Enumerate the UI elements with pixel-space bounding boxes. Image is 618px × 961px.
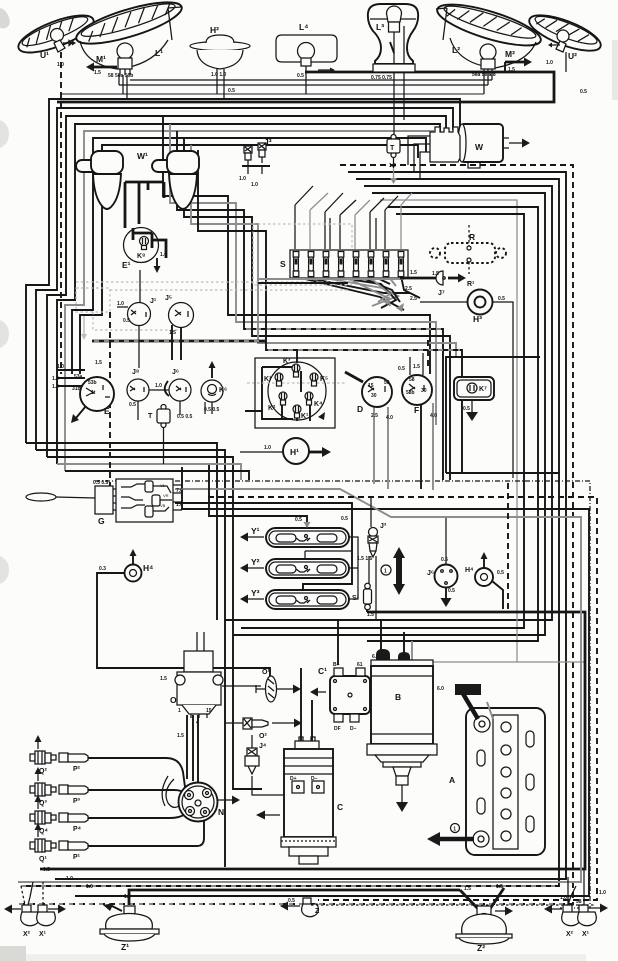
svg-text:50: 50 [384, 380, 390, 386]
svg-text:1.0 1.0: 1.0 1.0 [211, 72, 227, 78]
svg-text:T: T [390, 145, 395, 152]
svg-text:1.0: 1.0 [599, 890, 606, 896]
svg-text:D: D [357, 404, 363, 414]
svg-text:4.0: 4.0 [430, 413, 437, 419]
svg-text:56a 56 a 8: 56a 56 a 8 [472, 72, 496, 78]
svg-text:K⁵: K⁵ [320, 376, 328, 383]
svg-text:1.0: 1.0 [264, 445, 271, 451]
svg-text:H⁴: H⁴ [143, 563, 153, 573]
svg-text:L¹: L¹ [155, 48, 163, 58]
svg-text:Y³: Y³ [251, 588, 260, 598]
svg-text:E: E [104, 406, 110, 416]
svg-text:1.5 1.5: 1.5 1.5 [357, 556, 373, 562]
svg-text:1.0: 1.0 [52, 376, 59, 382]
svg-text:L⁴: L⁴ [299, 22, 308, 32]
svg-text:30: 30 [421, 388, 427, 394]
svg-text:0.5: 0.5 [498, 296, 505, 302]
svg-text:1.5: 1.5 [508, 67, 515, 73]
svg-text:1.0: 1.0 [389, 163, 396, 169]
svg-text:1.0: 1.0 [57, 364, 64, 370]
svg-text:0.5: 0.5 [295, 517, 302, 523]
svg-text:VR: VR [163, 493, 169, 498]
svg-text:6.0: 6.0 [437, 686, 444, 692]
svg-text:D+: D+ [290, 776, 297, 782]
svg-text:Z¹: Z¹ [121, 942, 129, 952]
svg-text:1.5: 1.5 [496, 884, 503, 890]
svg-text:0.5: 0.5 [228, 88, 235, 94]
svg-text:VB: VB [160, 503, 166, 508]
svg-text:58: 58 [576, 899, 582, 905]
svg-text:G: G [98, 516, 105, 526]
svg-text:W: W [475, 142, 484, 152]
svg-text:15: 15 [368, 383, 374, 389]
svg-text:53a: 53a [74, 374, 83, 380]
svg-text:V1: V1 [160, 483, 166, 488]
svg-text:Y²: Y² [251, 557, 260, 567]
svg-text:E¹: E¹ [122, 260, 131, 270]
svg-text:0.5: 0.5 [441, 557, 448, 563]
svg-text:J³: J³ [380, 523, 387, 530]
svg-text:0.5: 0.5 [448, 588, 455, 594]
svg-text:1.0: 1.0 [52, 384, 59, 390]
svg-text:J¹: J¹ [150, 298, 157, 305]
svg-text:K¹: K¹ [301, 413, 309, 420]
svg-text:4.0: 4.0 [386, 415, 393, 421]
svg-text:0.75 0.75: 0.75 0.75 [371, 75, 392, 81]
svg-text:L³: L³ [376, 22, 384, 32]
svg-text:W¹: W¹ [137, 151, 148, 161]
svg-text:1t: 1t [91, 390, 96, 396]
svg-text:D–: D– [350, 726, 357, 732]
svg-text:1.5: 1.5 [367, 612, 374, 618]
svg-text:K²: K² [268, 405, 276, 412]
svg-text:1.0: 1.0 [239, 176, 246, 182]
svg-text:Q¹: Q¹ [39, 856, 47, 863]
svg-text:J³: J³ [264, 137, 272, 147]
svg-text:1.0: 1.0 [546, 60, 553, 66]
svg-text:0.3: 0.3 [99, 566, 106, 572]
svg-text:53b: 53b [88, 380, 97, 386]
svg-text:T: T [148, 413, 153, 420]
svg-text:1.5: 1.5 [124, 894, 131, 900]
svg-text:F: F [414, 405, 419, 415]
svg-text:K⁶: K⁶ [219, 387, 227, 394]
svg-text:1.0: 1.0 [155, 383, 162, 389]
svg-text:0.5 0.5: 0.5 0.5 [93, 480, 109, 486]
svg-text:1.0: 1.0 [117, 301, 124, 307]
svg-text:0.5: 0.5 [129, 402, 136, 408]
svg-text:1.5: 1.5 [169, 330, 176, 336]
svg-text:31b: 31b [72, 386, 81, 392]
svg-text:7.0: 7.0 [176, 488, 183, 494]
svg-text:S: S [280, 259, 286, 269]
svg-text:U²: U² [568, 51, 577, 61]
svg-text:O¹: O¹ [262, 669, 270, 676]
svg-text:K⁸: K⁸ [137, 253, 145, 260]
svg-text:H²: H² [210, 25, 219, 35]
svg-text:H³: H³ [473, 314, 482, 324]
svg-text:M¹: M¹ [96, 54, 106, 64]
svg-text:L²: L² [452, 45, 460, 55]
svg-text:Z²: Z² [477, 943, 485, 953]
svg-text:P⁴: P⁴ [73, 826, 82, 833]
svg-text:0.5: 0.5 [580, 89, 587, 95]
svg-text:O: O [170, 695, 177, 705]
svg-text:X²: X² [23, 931, 31, 938]
svg-text:Q⁴: Q⁴ [39, 828, 48, 835]
svg-text:D–: D– [311, 776, 318, 782]
svg-text:1: 1 [453, 827, 456, 833]
svg-text:0.5: 0.5 [123, 318, 130, 324]
svg-text:C: C [337, 802, 343, 812]
svg-text:0.5: 0.5 [297, 73, 304, 79]
svg-text:1.5: 1.5 [95, 360, 102, 366]
svg-text:O²: O² [259, 733, 267, 740]
svg-text:4: 4 [196, 720, 199, 726]
svg-text:1.0: 1.0 [560, 895, 567, 901]
svg-text:30: 30 [371, 393, 377, 399]
svg-text:0.5: 0.5 [341, 516, 348, 522]
svg-text:DF: DF [334, 726, 341, 732]
svg-text:S¹: S¹ [352, 595, 360, 602]
svg-text:0.5: 0.5 [463, 406, 470, 412]
svg-text:2.5: 2.5 [371, 413, 378, 419]
svg-text:J⁶: J⁶ [172, 369, 179, 376]
svg-text:J⁸: J⁸ [132, 369, 139, 376]
svg-text:Z: Z [315, 908, 320, 915]
svg-text:0.5: 0.5 [288, 898, 295, 904]
svg-text:N: N [218, 807, 224, 817]
svg-text:P³: P³ [73, 798, 81, 805]
svg-text:6.0: 6.0 [372, 654, 379, 660]
svg-text:P¹: P¹ [73, 854, 81, 861]
svg-text:1.0: 1.0 [160, 252, 167, 258]
svg-text:1.0: 1.0 [176, 502, 183, 508]
svg-text:K⁷: K⁷ [479, 386, 487, 393]
svg-text:X¹: X¹ [39, 931, 47, 938]
svg-text:1.0: 1.0 [86, 884, 93, 890]
svg-text:1: 1 [384, 569, 387, 575]
svg-text:K¹: K¹ [264, 376, 272, 383]
svg-text:0.5: 0.5 [398, 366, 405, 372]
svg-text:M²: M² [505, 49, 515, 59]
svg-text:1.0: 1.0 [66, 876, 73, 882]
svg-text:0.5: 0.5 [497, 570, 504, 576]
svg-text:B: B [395, 692, 401, 702]
svg-text:61: 61 [357, 662, 363, 668]
svg-text:1: 1 [178, 708, 181, 714]
svg-text:X¹: X¹ [582, 931, 590, 938]
svg-text:K³: K³ [283, 358, 291, 365]
svg-text:1.5: 1.5 [94, 70, 101, 76]
svg-text:U¹: U¹ [40, 50, 49, 60]
svg-text:0.5 0.5: 0.5 0.5 [177, 414, 193, 420]
svg-text:H⁴: H⁴ [465, 567, 474, 574]
svg-text:58: 58 [409, 377, 415, 383]
svg-text:2.5: 2.5 [405, 286, 412, 292]
svg-text:Q²: Q² [39, 768, 47, 775]
svg-text:A: A [449, 775, 455, 785]
svg-text:R: R [469, 232, 475, 242]
svg-text:58b: 58b [406, 390, 415, 396]
svg-text:0.5: 0.5 [43, 867, 50, 873]
svg-text:15: 15 [206, 708, 212, 714]
svg-text:1.0: 1.0 [251, 182, 258, 188]
svg-text:1.5: 1.5 [413, 364, 420, 370]
svg-text:K⁴: K⁴ [314, 401, 323, 408]
svg-text:J⁷: J⁷ [438, 290, 445, 297]
svg-text:Y¹: Y¹ [251, 526, 260, 536]
svg-text:1.5: 1.5 [410, 270, 417, 276]
svg-text:H¹: H¹ [290, 447, 299, 457]
svg-text:2.5: 2.5 [410, 296, 417, 302]
svg-text:R¹: R¹ [467, 281, 475, 288]
svg-text:J⁴: J⁴ [259, 743, 267, 750]
svg-text:X²: X² [566, 931, 574, 938]
svg-text:J⁵: J⁵ [165, 295, 172, 302]
svg-text:1.0: 1.0 [57, 62, 64, 68]
svg-text:C¹: C¹ [318, 666, 327, 676]
svg-text:0.5 0.5: 0.5 0.5 [204, 407, 220, 413]
svg-text:1.5: 1.5 [160, 676, 167, 682]
svg-text:B+: B+ [333, 662, 340, 668]
svg-text:J⁶: J⁶ [427, 570, 434, 577]
svg-text:58 56a 56b: 58 56a 56b [108, 73, 133, 79]
svg-text:Q³: Q³ [39, 800, 47, 807]
svg-text:1.5: 1.5 [177, 733, 184, 739]
svg-text:1.5: 1.5 [432, 271, 439, 277]
svg-text:P²: P² [73, 766, 81, 773]
svg-text:1.5: 1.5 [464, 886, 471, 892]
